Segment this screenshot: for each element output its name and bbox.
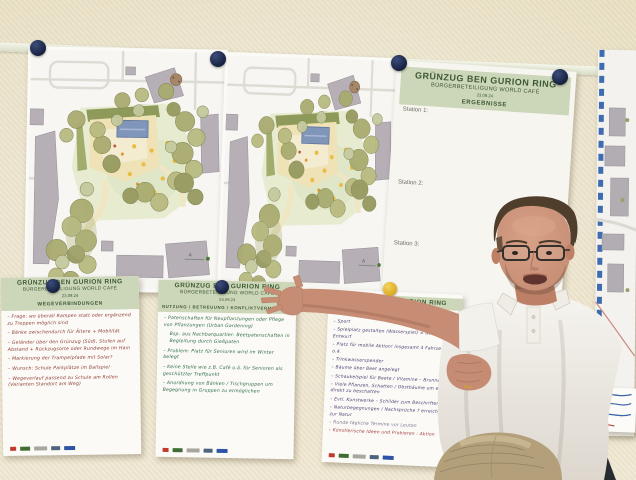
magnet-navy	[46, 279, 60, 293]
partner-logo-blue	[217, 449, 228, 454]
city-map-drawing	[594, 50, 636, 436]
magnet-navy	[215, 280, 229, 294]
ear	[566, 244, 575, 260]
city-map-sheet	[594, 50, 636, 436]
site-plan-drawing	[220, 55, 398, 297]
notes-poster-station-2: GRÜNZUG BEN GURION RING BÜRGERBETEILIGUN…	[155, 280, 296, 459]
scribble-sheet	[596, 387, 636, 432]
note-line: – Bänke zwischendurch für Ältere + Mobil…	[8, 329, 135, 337]
partner-logo-blue	[64, 446, 75, 451]
partner-logo-green	[20, 446, 30, 451]
note-line: – Wegeverlauf passend zu Schule am Rolle…	[8, 375, 135, 390]
partner-logo-blue	[383, 455, 394, 460]
site-plan-drawing	[27, 49, 225, 290]
note-line: – Problem: Platz für Senioren wird im Wi…	[163, 349, 290, 365]
magnet-navy	[552, 69, 568, 85]
note-line: – Wunsch: Schule Parkplätze im Ballspiel	[8, 365, 135, 373]
note-line: Bsp. aus Nachbarquartier: Beetpatenschaf…	[163, 332, 290, 348]
magnet-navy	[30, 40, 46, 56]
site-plan-sheet-2	[217, 52, 401, 300]
partner-logo-green	[339, 453, 349, 458]
logo-strip	[10, 444, 134, 452]
results-poster: GRÜNZUG BEN GURION RING BÜRGERBETEILIGUN…	[380, 60, 577, 327]
presenter-pants	[452, 443, 616, 480]
magnet-yellow	[383, 282, 397, 296]
partner-logo-gray	[34, 446, 47, 451]
poster-date: 23.09.24	[160, 296, 294, 303]
note-line: – Frage: wo überall Rampen statt oder er…	[7, 313, 134, 328]
station-label-3: Station 3:	[394, 240, 420, 248]
notes-poster-station-3: GRÜNZUG BEN GURION RING – Sport – Spielp…	[321, 289, 462, 468]
partner-logo-red	[10, 447, 16, 452]
magnet-navy	[391, 55, 407, 71]
logo-strip	[163, 447, 287, 455]
partner-logo-steel	[370, 455, 379, 460]
poster-header: GRÜNZUG BEN GURION RING BÜRGERBETEILIGUN…	[1, 276, 139, 311]
site-plan-sheet-1	[24, 46, 228, 293]
poster-date: 23.09.24	[3, 292, 137, 299]
partner-logo-red	[163, 448, 169, 453]
poster-section: WEGEVERBINDUNGEN	[3, 300, 137, 308]
photo-of-workshop-wall: { "colors": { "wall": "#ece4cc", "poster…	[0, 0, 636, 480]
partner-logo-steel	[51, 446, 60, 451]
logo-strip	[329, 452, 449, 463]
note-line: – Patenschaften für Neupflanzungen oder …	[164, 316, 291, 332]
magnet-navy	[210, 51, 226, 67]
scribble-marks	[596, 387, 636, 432]
station-label-1: Station 1:	[403, 106, 429, 114]
polo-button	[532, 329, 535, 332]
partner-logo-steel	[204, 448, 213, 453]
partner-logo-gray	[187, 448, 200, 453]
note-line: – Markierung der Trampelpfade mit Solar?	[8, 355, 135, 363]
note-line: – Anordnung von Bänken / Tischgruppen um…	[163, 381, 290, 397]
partner-logo-green	[173, 448, 183, 453]
ring	[464, 386, 472, 388]
note-line: – Geländer über den Grünzug (Süd), Stufe…	[8, 339, 135, 354]
note-line: – Keine Stelle wie z.B. Café o.ä. für Se…	[163, 365, 290, 381]
partner-logo-gray	[353, 454, 366, 459]
station-label-2: Station 2:	[398, 179, 424, 187]
notes-poster-station-1: GRÜNZUG BEN GURION RING BÜRGERBETEILIGUN…	[1, 276, 141, 456]
partner-logo-red	[329, 453, 335, 458]
poster-section: NUTZUNG / BETREUUNG / KONFLIKTVERMEIDUNG	[160, 304, 294, 311]
